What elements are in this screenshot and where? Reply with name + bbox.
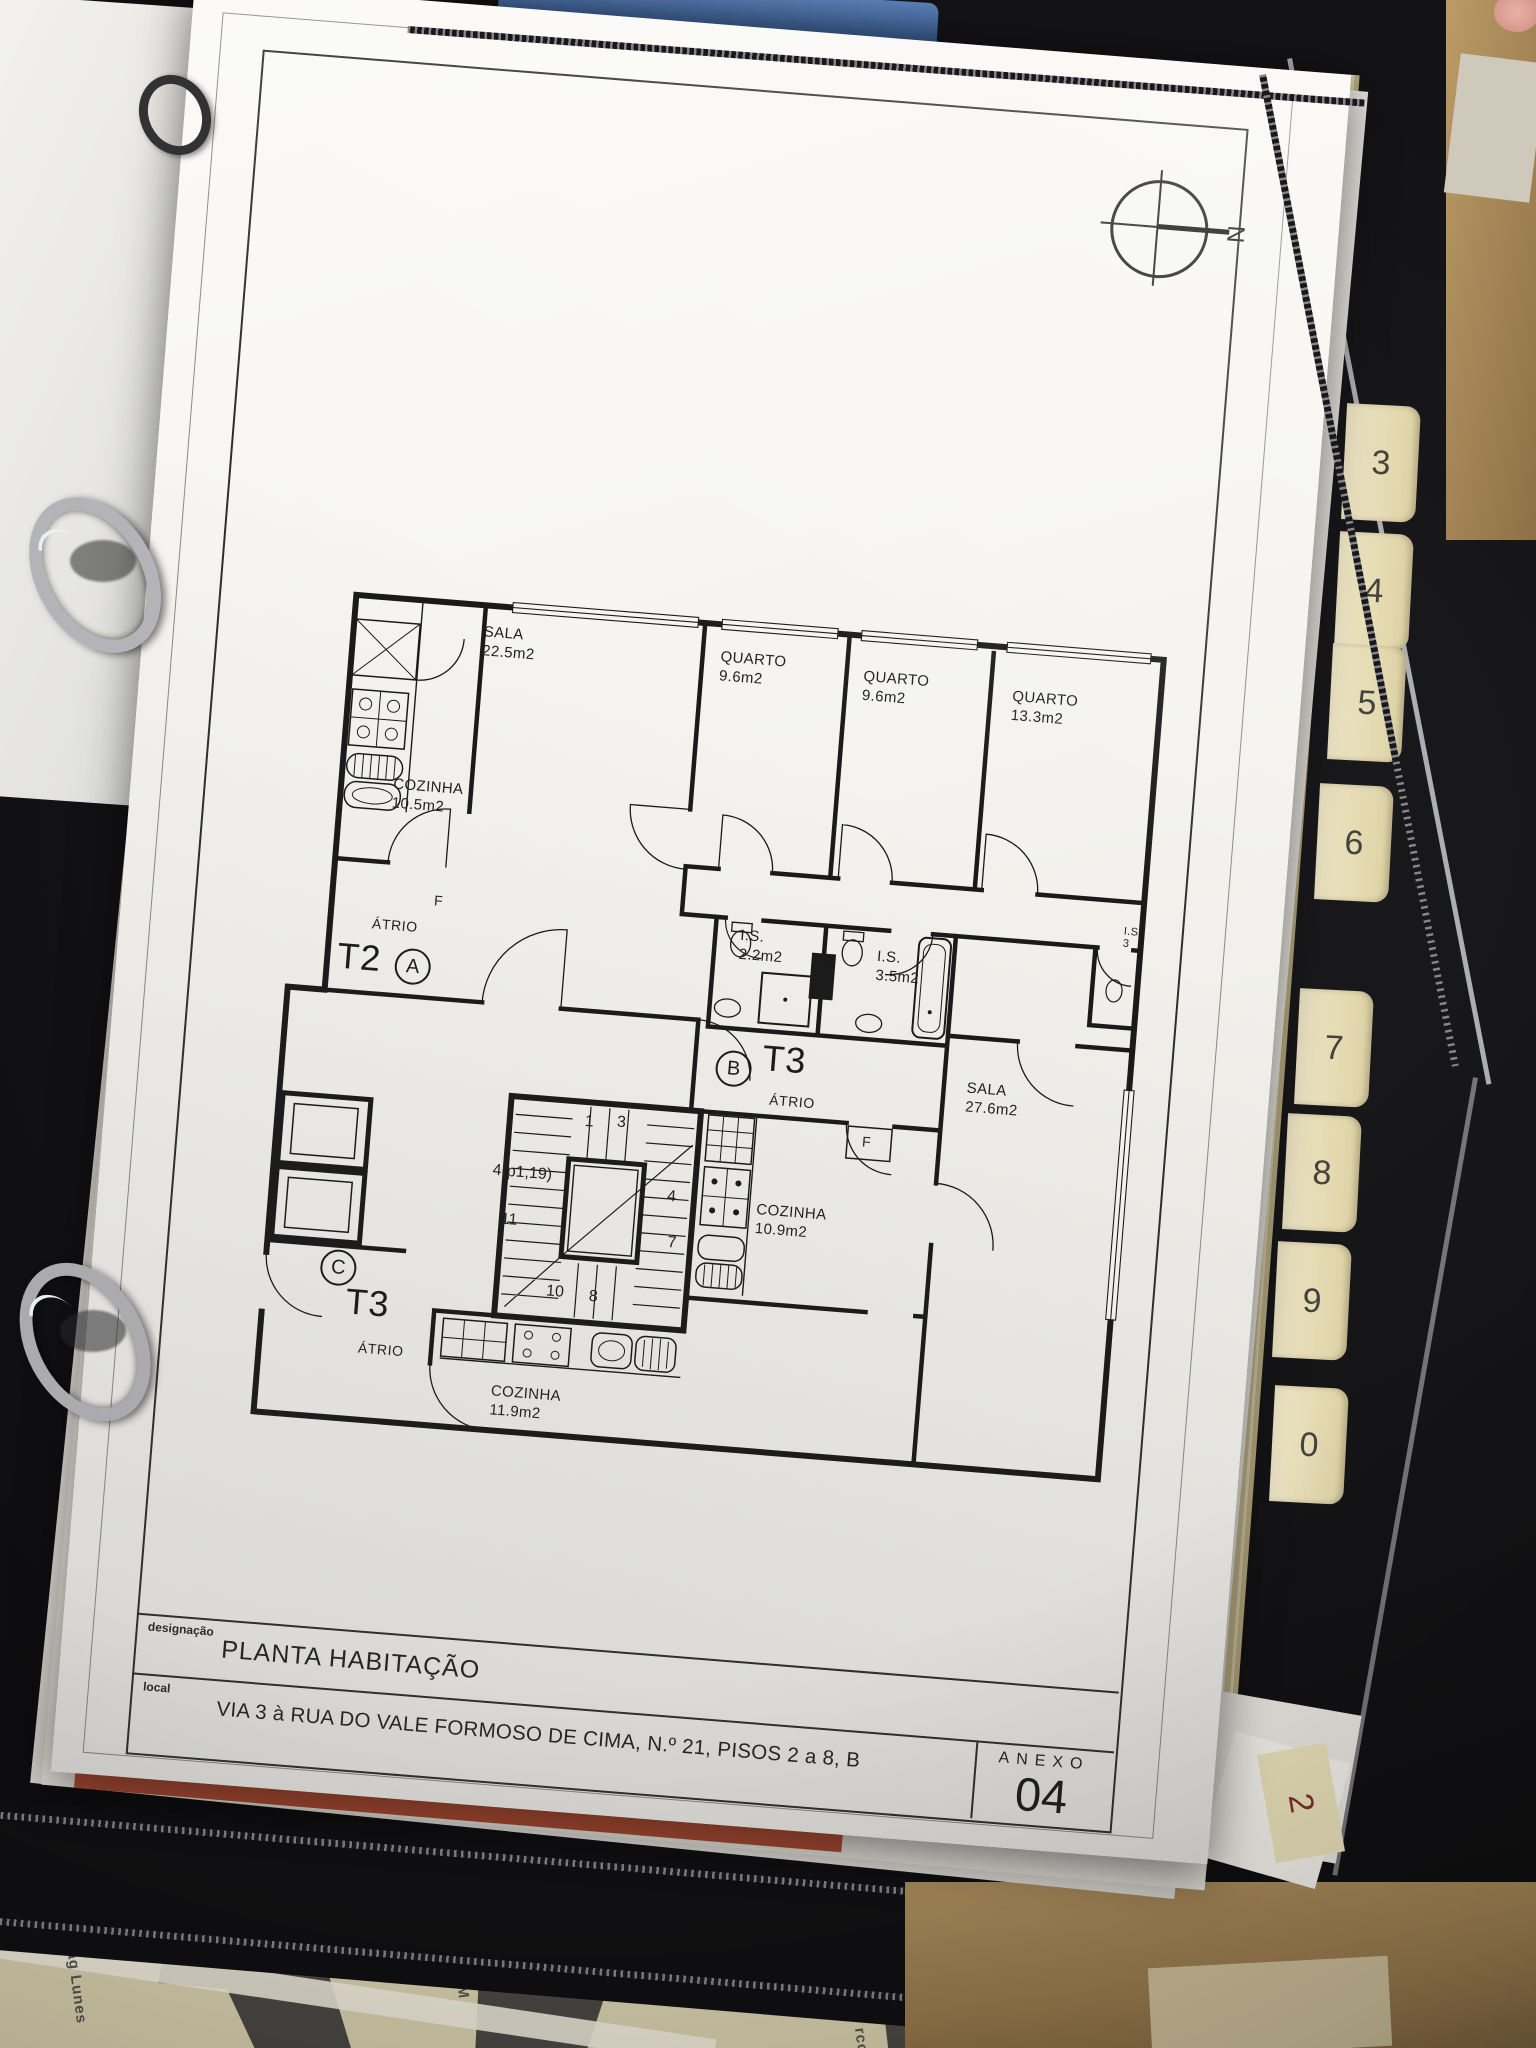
tab-divider-6: 6 [1314,783,1394,903]
room-label-is-1: I.S.2.2m2 [738,927,785,968]
room-label-sala-b: SALA27.6m2 [964,1079,1019,1121]
room-label-is-3: I.S.3 [1122,926,1142,952]
room-label-cozinha-c: COZINHA11.9m2 [489,1382,562,1425]
room-label-sala-a: SALA22.5m2 [481,623,536,665]
fridge-label-a: F [433,892,443,909]
unit-type-t3b: T3 [761,1037,808,1082]
room-label-cozinha-a: COZINHA10.5m2 [391,776,464,819]
tab-divider-7: 7 [1294,988,1374,1108]
unit-type-t2a: T2 [336,935,383,980]
tab-divider-8: 8 [1282,1113,1362,1233]
stair-number-11: 11 [500,1211,518,1230]
stair-number-4: 4 [666,1188,676,1207]
tab-divider-9: 9 [1272,1241,1352,1361]
anexo-number: 04 [970,1762,1112,1828]
stair-number-10: 10 [545,1282,564,1301]
tab-divider-10: 0 [1269,1385,1349,1505]
photo-scene: Lundi Montag Lunes Ma Di M di day rcoled… [0,0,1536,2048]
floor-plan-sheet: N [51,0,1351,1864]
room-label-cozinha-b: COZINHA10.9m2 [754,1201,827,1244]
planner-day-text: rcoled dnes [851,2027,880,2048]
beige-object-bottom-right [1148,1956,1392,2048]
room-label-quarto-2: QUARTO9.6m2 [861,668,930,711]
fridge-label-b: F [862,1133,872,1150]
local-label: local [143,1679,171,1695]
room-label-quarto-3: QUARTO13.3m2 [1010,688,1079,731]
north-compass-icon [1105,174,1213,282]
stair-number-3: 3 [616,1114,626,1133]
tab-divider-3: 3 [1341,403,1421,523]
unit-type-t3c: T3 [344,1280,391,1325]
stair-number-1: 1 [584,1113,594,1132]
paper-scrap-on-desk [1444,53,1536,202]
room-label-is-2: I.S.3.5m2 [875,948,922,989]
stair-number-7: 7 [667,1234,677,1253]
room-label-quarto-1: QUARTO9.6m2 [718,648,787,691]
stair-number-8: 8 [588,1288,598,1307]
compass-n-label: N [1220,224,1249,244]
